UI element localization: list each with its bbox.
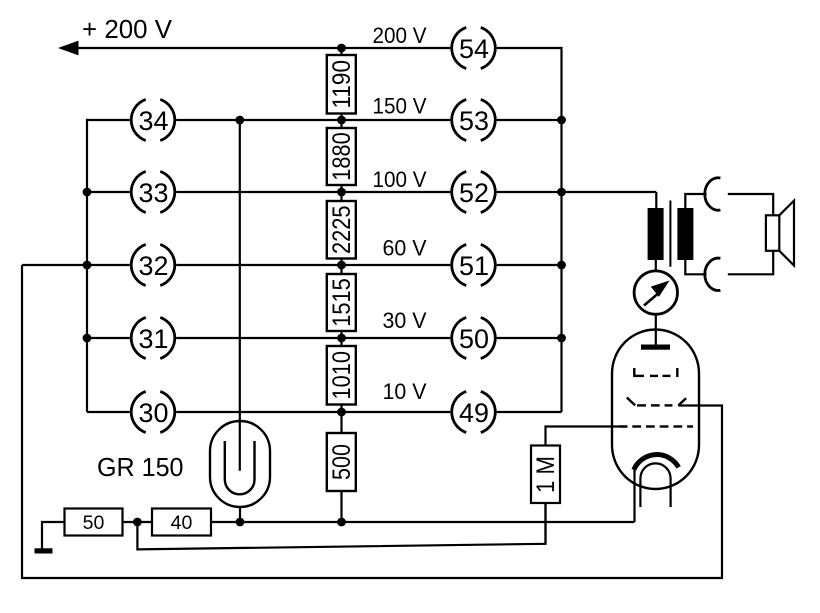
svg-text:1190: 1190 [328, 60, 356, 109]
svg-text:50: 50 [459, 324, 489, 354]
svg-text:60 V: 60 V [383, 236, 427, 261]
svg-text:50: 50 [83, 512, 105, 534]
svg-text:52: 52 [459, 178, 489, 208]
svg-text:32: 32 [139, 251, 169, 281]
svg-text:33: 33 [139, 178, 169, 208]
svg-text:100 V: 100 V [373, 167, 427, 192]
svg-text:10 V: 10 V [383, 379, 427, 404]
svg-text:1 M: 1 M [532, 456, 560, 493]
svg-text:150 V: 150 V [373, 94, 427, 119]
svg-text:1880: 1880 [328, 132, 356, 181]
svg-text:+ 200 V: + 200 V [82, 14, 173, 44]
svg-text:30: 30 [139, 398, 169, 428]
svg-text:49: 49 [459, 398, 489, 428]
svg-text:54: 54 [459, 34, 489, 64]
svg-text:31: 31 [139, 324, 169, 354]
svg-text:1515: 1515 [328, 278, 356, 327]
svg-text:34: 34 [139, 106, 169, 136]
svg-text:53: 53 [459, 106, 489, 136]
svg-text:500: 500 [328, 444, 356, 480]
svg-text:1010: 1010 [328, 351, 356, 400]
svg-text:2225: 2225 [328, 206, 356, 255]
svg-text:40: 40 [171, 512, 193, 534]
svg-text:200 V: 200 V [373, 23, 427, 48]
svg-text:GR 150: GR 150 [97, 452, 184, 482]
svg-text:30 V: 30 V [383, 308, 427, 333]
svg-text:51: 51 [459, 251, 489, 281]
